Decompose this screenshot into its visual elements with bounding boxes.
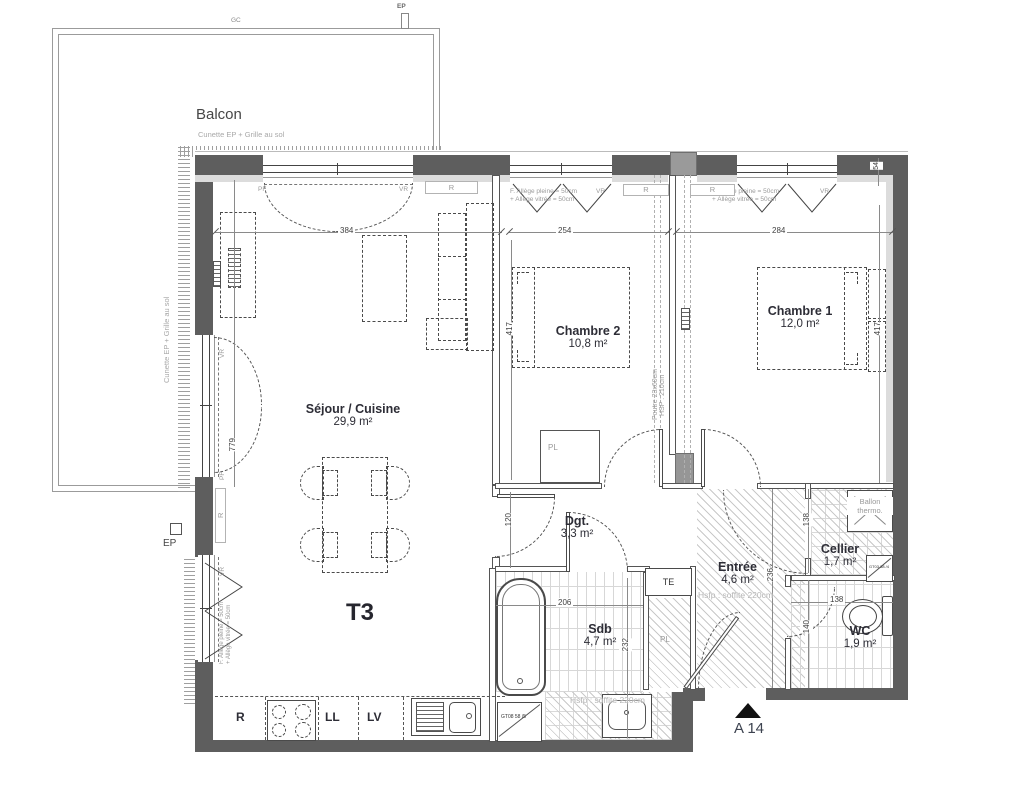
floor-plan: GC EP Balcon Cunette EP + Grille au sol … <box>0 0 1017 800</box>
vr-tag: VR <box>219 338 227 358</box>
sofa-chaise <box>426 318 468 350</box>
bed-pillow-mark <box>517 272 529 284</box>
balcony-note: Cunette EP + Grille au sol <box>198 131 284 139</box>
bed-pillow-mark <box>517 350 529 362</box>
dim-ch2-depth: 417 <box>503 322 516 335</box>
beam-tag <box>681 308 690 330</box>
wall-bottom <box>203 740 673 752</box>
bathtub-drain <box>517 678 523 684</box>
vr-tag: VR <box>399 186 408 194</box>
wall-segment <box>697 155 737 175</box>
radiator-ch1: R <box>690 184 735 196</box>
bed-pillow-mark <box>846 272 858 284</box>
dim-ch1-depth: 417 <box>871 322 884 335</box>
dim-living-depth: 779 <box>226 438 239 451</box>
room-area: 12,0 m² <box>740 318 860 330</box>
balcony-title: Balcon <box>196 106 242 123</box>
coffee-table <box>362 235 407 322</box>
room-area: 3,3 m² <box>546 528 608 540</box>
room-name: Séjour / Cuisine <box>276 402 430 416</box>
soffit-note-sdb: Hsfp : soffite 220cm <box>570 695 645 705</box>
closet-ch2-label: PL <box>548 444 558 452</box>
bathtub-inner <box>502 584 540 690</box>
sofa-cushion-line <box>438 299 466 300</box>
dishwasher-label: LV <box>367 710 381 724</box>
dim-line <box>808 580 809 688</box>
unit-number-label: A 14 <box>725 720 773 737</box>
ep-top-label: EP <box>397 3 406 11</box>
chair-seat <box>371 470 387 496</box>
vr-tag: VR <box>596 188 605 196</box>
door-ref-sdb-label: GT08 58 /5 <box>501 714 526 720</box>
dim-living-width: 384 <box>338 226 355 235</box>
kitchen-divider <box>358 697 359 740</box>
door-leaf-ch2 <box>659 429 663 487</box>
partition-sdb-top <box>495 566 567 572</box>
room-name: WC <box>820 624 900 638</box>
dim-cellier: 138 <box>800 513 813 526</box>
window-living-left-glazing <box>202 335 210 477</box>
room-label-wc: WC 1,9 m² <box>820 624 900 650</box>
wall-segment <box>413 155 510 175</box>
electrical-panel-label: TE <box>663 577 675 587</box>
room-label-dgt: Dgt. 3,3 m² <box>546 514 608 540</box>
facade-line <box>195 151 908 152</box>
kitchen-divider <box>403 697 404 740</box>
room-name: Cellier <box>802 542 878 556</box>
electrical-panel: TE <box>645 568 692 596</box>
burner <box>272 705 286 719</box>
room-area: 4,7 m² <box>568 636 632 648</box>
pf-tag: PF <box>258 186 266 194</box>
bed-ch2-pillow-line <box>534 267 535 368</box>
room-area: 1,7 m² <box>802 556 878 568</box>
soffit-note-entree: Hsfp : soffite 220cm <box>698 590 773 600</box>
wall-lining <box>697 175 737 182</box>
wall-step <box>672 692 693 752</box>
dim-line <box>509 232 669 233</box>
dim-wc-width: 138 <box>828 595 845 604</box>
dim-offset: 54 <box>870 162 883 170</box>
dim-wc-depth: 140 <box>800 620 813 633</box>
burner <box>295 704 311 720</box>
sofa-back <box>466 203 494 351</box>
dim-sdb-width: 206 <box>556 598 573 607</box>
partition-wc-left <box>785 638 791 690</box>
door-leaf-dgt <box>497 494 555 498</box>
sink-tap <box>466 713 472 719</box>
door-leaf-ch1 <box>701 429 705 487</box>
pf-tag: PF <box>219 460 227 480</box>
ep-square <box>170 523 182 535</box>
washer-label: LL <box>325 710 340 724</box>
dim-dgt: 120 <box>502 513 515 526</box>
corridor-closet-label: PL <box>660 636 670 644</box>
room-label-cellier: Cellier 1,7 m² <box>802 542 878 568</box>
burner <box>272 723 286 737</box>
unit-type-label: T3 <box>328 599 392 627</box>
room-area: 1,9 m² <box>820 638 900 650</box>
window-mullion <box>787 163 788 175</box>
window-sill <box>510 177 612 178</box>
room-area: 10,8 m² <box>528 338 648 350</box>
chair-seat <box>322 532 338 558</box>
balcony-side-note: Cunette EP + Grille au sol <box>163 243 176 383</box>
beam-line <box>690 175 691 483</box>
wall-left-mid <box>195 477 213 557</box>
room-label-sdb: Sdb 4,7 m² <box>568 622 632 648</box>
balcony-drain-strip-left <box>178 146 190 492</box>
nightstand <box>868 269 886 319</box>
wall-left-upper <box>195 160 213 335</box>
chair-seat <box>322 470 338 496</box>
partition-corridor-top <box>495 483 602 489</box>
room-label-entree: Entrée 4,6 m² <box>695 560 780 586</box>
radiator-living: R <box>425 181 478 194</box>
bed-ch2 <box>512 267 630 368</box>
room-name: Chambre 2 <box>528 324 648 338</box>
dim-line <box>772 489 773 688</box>
window-mullion <box>561 163 562 175</box>
ep-downspout <box>401 13 409 29</box>
room-label-sejour: Séjour / Cuisine 29,9 m² <box>276 402 430 428</box>
radiator-ch2: R <box>623 184 669 196</box>
room-label-ch1: Chambre 1 12,0 m² <box>740 304 860 330</box>
bed-pillow-mark <box>846 353 858 365</box>
vr-tag: VR <box>219 556 227 576</box>
vr-tag: VR <box>820 188 829 196</box>
partition-corridor-top <box>757 483 894 489</box>
radiator-left-wall: R <box>215 488 226 543</box>
fridge-label: R <box>236 710 245 724</box>
kitchen-divider <box>265 697 266 740</box>
room-area: 29,9 m² <box>276 416 430 428</box>
burner <box>295 722 311 738</box>
window-living-glazing <box>263 165 413 173</box>
wall-lining-right <box>886 182 893 482</box>
kitchen-counter-edge <box>215 696 505 697</box>
room-area: 4,6 m² <box>695 574 780 586</box>
wall-right <box>893 158 908 698</box>
window-mullion <box>337 163 338 175</box>
room-name: Entrée <box>695 560 780 574</box>
window-sill <box>263 177 413 178</box>
partition-wc-left <box>785 575 791 587</box>
chair-seat <box>371 532 387 558</box>
sink-bowl <box>449 702 476 733</box>
kitchen-divider <box>318 697 319 740</box>
room-label-ch2: Chambre 2 10,8 m² <box>528 324 648 350</box>
partition-corridor-top <box>662 483 703 489</box>
dim-line <box>511 240 512 480</box>
window-sill <box>737 177 837 178</box>
partition-sdb-left <box>489 568 496 742</box>
dim-line <box>215 232 502 233</box>
dim-line <box>510 492 511 568</box>
window-note-ch2: F. Allège pleine = 50cm + Allège vitrée … <box>510 188 577 203</box>
water-heater-label: Ballon thermo. <box>847 497 893 515</box>
dim-ch1-width: 284 <box>770 226 787 235</box>
wall-lining <box>195 175 263 182</box>
sofa-cushion-line <box>438 256 466 257</box>
window-mullion <box>200 405 212 406</box>
sink-drainboard <box>416 702 444 732</box>
gc-label: GC <box>228 17 244 25</box>
room-name: Chambre 1 <box>740 304 860 318</box>
dim-ch2-width: 254 <box>556 226 573 235</box>
dim-line <box>627 578 628 738</box>
wall-segment <box>612 155 670 175</box>
structural-pillar <box>670 152 697 176</box>
wall-lining <box>837 175 893 182</box>
wall-left-lower <box>195 660 213 752</box>
entrance-arrow-icon <box>735 703 761 718</box>
dim-line <box>879 205 880 483</box>
ep-left-label: EP <box>163 538 176 549</box>
room-name: Dgt. <box>546 514 608 528</box>
closet-ch2 <box>540 430 600 483</box>
room-name: Sdb <box>568 622 632 636</box>
window-note-kitchen: F. Allège pleine = 50cm + Allège vitrée … <box>219 582 235 664</box>
